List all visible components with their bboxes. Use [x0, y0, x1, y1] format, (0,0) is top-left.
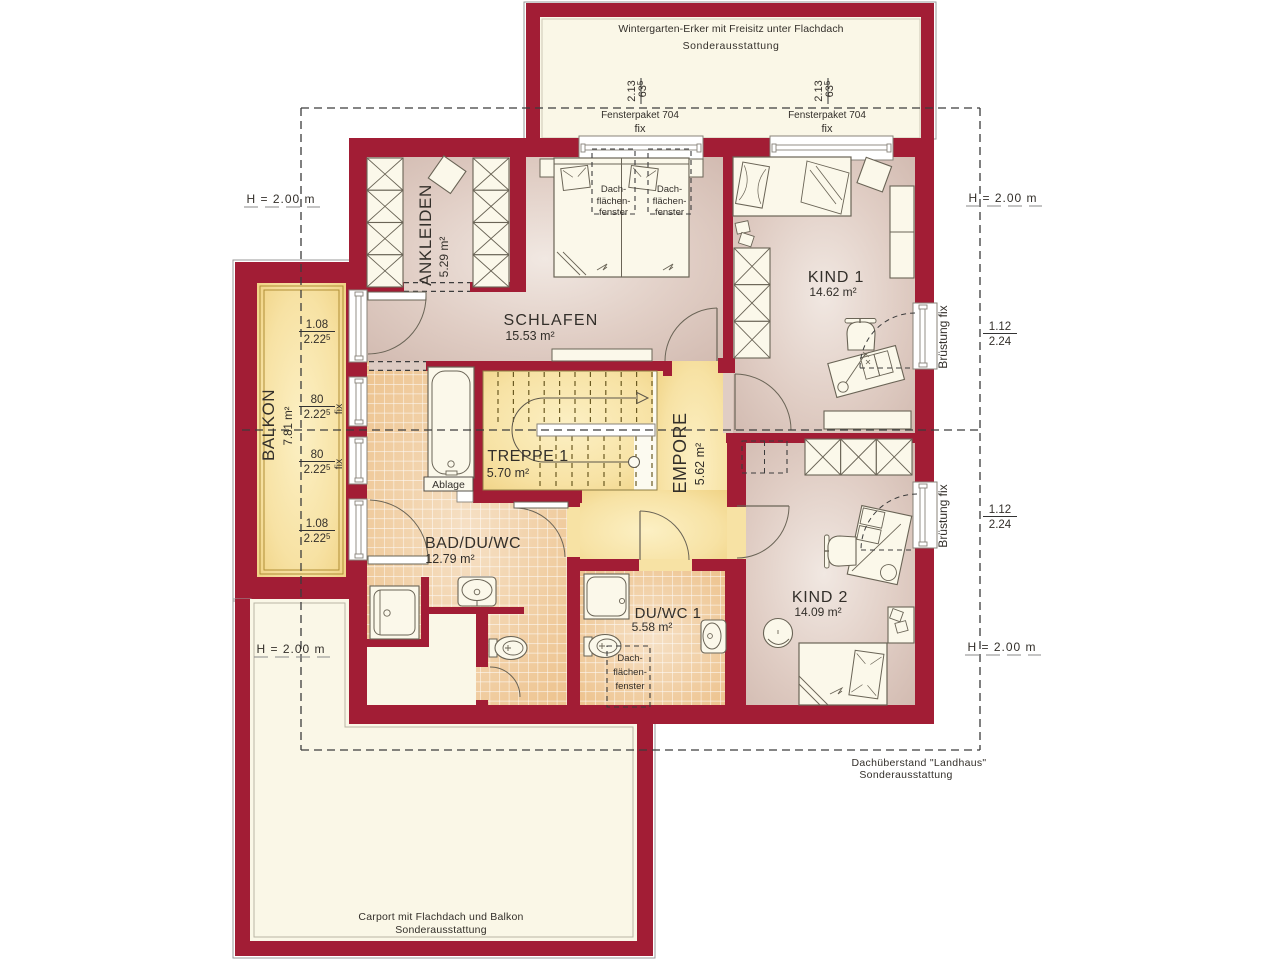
svg-text:14.09 m²: 14.09 m² [794, 605, 841, 619]
svg-text:Fensterpaket 704: Fensterpaket 704 [601, 110, 679, 121]
svg-text:EMPORE: EMPORE [670, 412, 690, 493]
svg-text:5.70 m²: 5.70 m² [487, 466, 529, 480]
svg-text:fix: fix [822, 123, 834, 135]
svg-text:Sonderausstattung: Sonderausstattung [859, 769, 952, 781]
svg-text:BAD/DU/WC: BAD/DU/WC [425, 535, 521, 552]
svg-text:H = 2.00 m: H = 2.00 m [967, 640, 1036, 654]
svg-text:fix: fix [333, 403, 345, 414]
svg-text:2.24: 2.24 [989, 519, 1012, 531]
svg-text:Fensterpaket 704: Fensterpaket 704 [788, 110, 866, 121]
svg-text:Dach-: Dach- [657, 184, 682, 195]
svg-text:1.08: 1.08 [306, 518, 328, 530]
svg-text:fix: fix [333, 458, 345, 469]
svg-text:Sonderausstattung: Sonderausstattung [395, 924, 487, 936]
svg-text:fenster: fenster [599, 207, 628, 218]
svg-text:ANKLEIDEN: ANKLEIDEN [416, 184, 435, 286]
svg-text:Dach-: Dach- [617, 653, 642, 664]
svg-text:Wintergarten-Erker mit Freisit: Wintergarten-Erker mit Freisitz unter Fl… [618, 23, 843, 35]
svg-text:1.12: 1.12 [989, 504, 1011, 516]
svg-text:fix: fix [635, 123, 647, 135]
svg-text:14.62 m²: 14.62 m² [809, 285, 856, 299]
svg-text:Sonderausstattung: Sonderausstattung [683, 40, 780, 52]
svg-text:80: 80 [311, 449, 324, 461]
svg-text:15.53 m²: 15.53 m² [505, 329, 554, 343]
svg-text:KIND 1: KIND 1 [808, 269, 864, 286]
svg-text:7.81 m²: 7.81 m² [283, 406, 295, 445]
svg-text:Carport mit Flachdach und Balk: Carport mit Flachdach und Balkon [358, 911, 523, 923]
svg-text:H = 2.00 m: H = 2.00 m [246, 192, 315, 206]
svg-text:2.24: 2.24 [989, 336, 1012, 348]
svg-text:H = 2.00 m: H = 2.00 m [256, 642, 325, 656]
svg-text:Dach-: Dach- [601, 184, 626, 195]
svg-text:TREPPE 1: TREPPE 1 [487, 448, 568, 465]
svg-text:Dachüberstand "Landhaus": Dachüberstand "Landhaus" [852, 757, 987, 769]
svg-text:flächen-: flächen- [613, 667, 647, 678]
svg-text:5.29 m²: 5.29 m² [437, 237, 451, 278]
svg-text:80: 80 [311, 394, 324, 406]
svg-text:fenster: fenster [615, 681, 644, 692]
svg-text:12.79 m²: 12.79 m² [425, 552, 474, 566]
svg-text:KIND 2: KIND 2 [792, 589, 848, 606]
svg-text:5.62 m²: 5.62 m² [693, 443, 707, 485]
svg-text:SCHLAFEN: SCHLAFEN [504, 312, 599, 329]
svg-text:Ablage: Ablage [432, 479, 465, 491]
svg-text:fenster: fenster [655, 207, 684, 218]
svg-text:flächen-: flächen- [653, 196, 687, 207]
svg-text:Brüstung fix: Brüstung fix [936, 484, 950, 547]
svg-text:1.08: 1.08 [306, 319, 328, 331]
svg-text:flächen-: flächen- [597, 196, 631, 207]
svg-text:BALKON: BALKON [259, 389, 278, 461]
svg-text:1.12: 1.12 [989, 321, 1011, 333]
svg-text:Brüstung fix: Brüstung fix [936, 305, 950, 368]
svg-text:5.58 m²: 5.58 m² [632, 620, 673, 634]
svg-text:H = 2.00 m: H = 2.00 m [968, 191, 1037, 205]
